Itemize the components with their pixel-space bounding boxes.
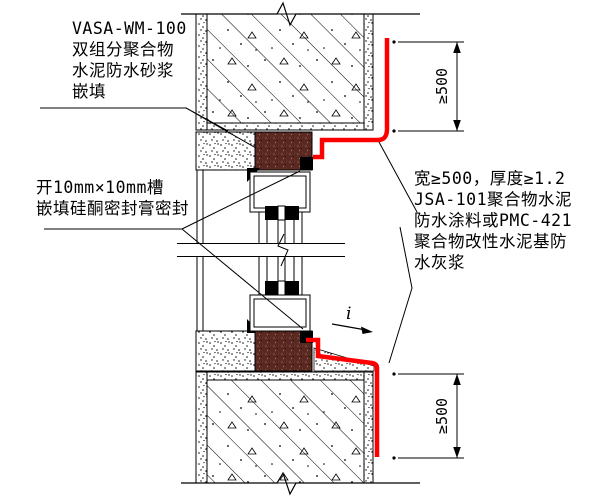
plaster-band-right-bottom [364, 372, 373, 483]
plaster-band-sill-top [207, 372, 364, 380]
window-waterproofing-detail-page: ≥500 ≥500 i VASA-WM-100 双组分聚合物 水泥防水砂浆 嵌填… [0, 0, 611, 496]
detail-drawing: ≥500 ≥500 i VASA-WM-100 双组分聚合物 水泥防水砂浆 嵌填… [0, 0, 611, 496]
annotation-line: 防水涂料或PMC-421 [414, 211, 572, 230]
mortar-fill-interior-bottom [196, 331, 255, 371]
mortar-fill-interior-top [196, 132, 255, 170]
annotation-line: 开10mm×10mm槽 [36, 178, 164, 197]
dim-bottom-label: ≥500 [433, 398, 451, 434]
plaster-band-left-bottom [196, 372, 207, 483]
plaster-band-right-top [364, 14, 373, 130]
annotation-line: VASA-WM-100 [72, 19, 187, 38]
glass-slot-top [278, 206, 285, 220]
concrete-aggregate-bottom [207, 380, 364, 483]
annotation-line: 嵌填硅酮密封膏密封 [36, 198, 189, 218]
annotation-line: 水泥防水砂浆 [72, 61, 174, 80]
sealant-square-top [300, 157, 313, 170]
annotation-line: 水灰浆 [414, 253, 465, 272]
annotation-line: 双组分聚合物 [72, 40, 174, 59]
concrete-aggregate-top [207, 14, 364, 123]
glass-slot-bottom [278, 281, 285, 295]
wall-section-top [196, 14, 373, 130]
annotation-line: 嵌填 [72, 82, 106, 101]
annotation-line: JSA-101聚合物水泥 [414, 190, 572, 209]
annotation-line: 宽≥500，厚度≥1.2 [414, 169, 565, 188]
head-joint-band [196, 132, 313, 170]
dim-top-label: ≥500 [433, 68, 451, 104]
frame-sill-member [250, 295, 310, 331]
wall-section-bottom [196, 372, 373, 483]
plaster-band-soffit [207, 123, 364, 130]
annotation-line: 聚合物改性水泥基防 [414, 232, 567, 251]
plaster-band-left-top [196, 14, 207, 130]
slope-label: i [346, 304, 351, 324]
